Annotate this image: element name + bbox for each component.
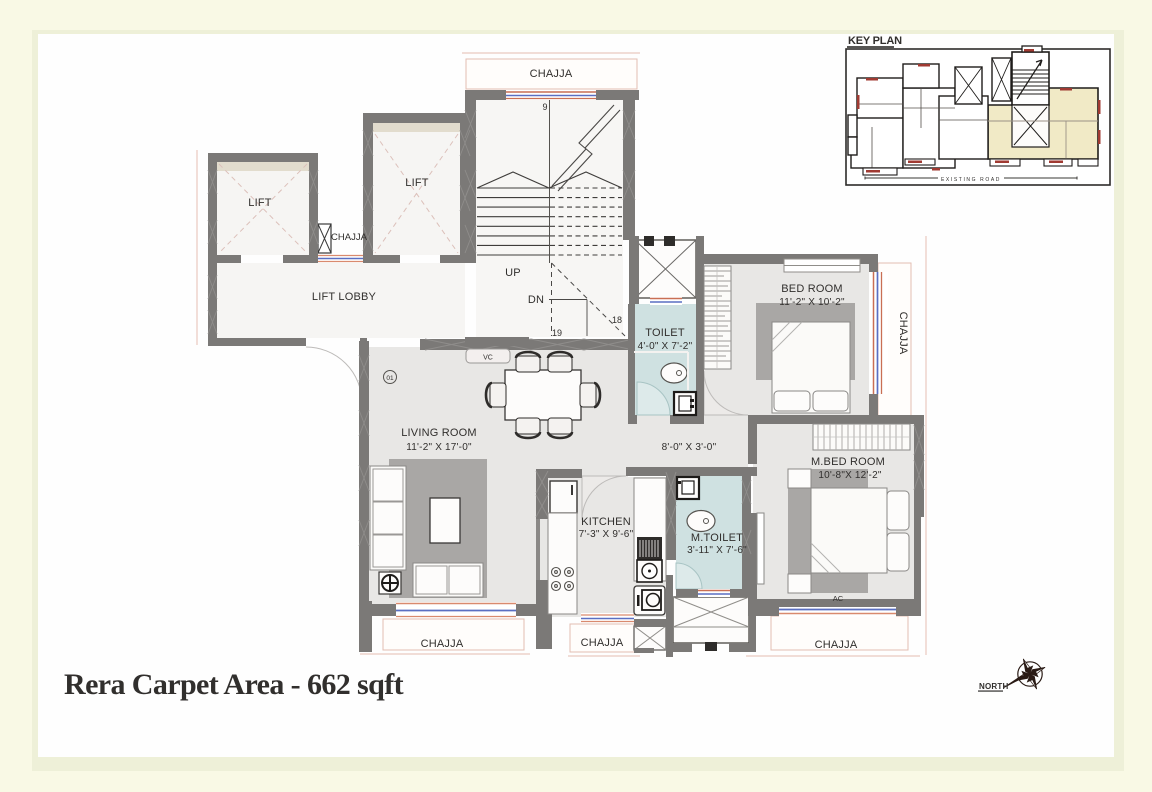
svg-text:19: 19: [552, 328, 562, 338]
svg-text:LIFT LOBBY: LIFT LOBBY: [312, 291, 377, 303]
svg-text:AC: AC: [833, 594, 844, 603]
svg-text:CHAJJA: CHAJJA: [897, 312, 909, 355]
svg-text:NORTH: NORTH: [979, 682, 1008, 691]
svg-text:KITCHEN: KITCHEN: [581, 516, 631, 528]
svg-text:3'-11" X 7'-6": 3'-11" X 7'-6": [687, 545, 747, 556]
svg-text:8'-0" X 3'-0": 8'-0" X 3'-0": [662, 442, 717, 453]
svg-text:UP: UP: [505, 267, 521, 279]
svg-text:Rera Carpet Area - 662 sqft: Rera Carpet Area - 662 sqft: [64, 668, 404, 701]
svg-text:CHAJJA: CHAJJA: [815, 639, 858, 651]
svg-text:CHAJJA: CHAJJA: [421, 638, 464, 650]
svg-text:BED ROOM: BED ROOM: [781, 283, 843, 295]
svg-text:DN: DN: [528, 294, 544, 306]
svg-text:CHAJJA: CHAJJA: [530, 68, 573, 80]
svg-text:M.BED ROOM: M.BED ROOM: [811, 456, 885, 468]
svg-text:9: 9: [542, 102, 547, 112]
svg-text:CHAJJA: CHAJJA: [331, 232, 368, 243]
svg-text:01: 01: [386, 375, 394, 382]
svg-text:KEY PLAN: KEY PLAN: [848, 35, 902, 47]
svg-text:CHAJJA: CHAJJA: [581, 637, 624, 649]
svg-text:M.TOILET: M.TOILET: [691, 532, 743, 544]
svg-text:11'-2" X 17'-0": 11'-2" X 17'-0": [406, 442, 472, 453]
svg-text:4'-0" X 7'-2": 4'-0" X 7'-2": [638, 341, 693, 352]
svg-text:VC: VC: [483, 355, 493, 362]
svg-text:LIFT: LIFT: [248, 197, 271, 209]
svg-text:18: 18: [612, 315, 622, 325]
svg-text:TOILET: TOILET: [645, 327, 685, 339]
svg-text:11'-2" X 10'-2": 11'-2" X 10'-2": [779, 297, 845, 308]
svg-text:10'-8"X 12'-2": 10'-8"X 12'-2": [818, 470, 881, 481]
svg-text:LIVING ROOM: LIVING ROOM: [401, 427, 477, 439]
svg-text:7'-3" X 9'-6": 7'-3" X 9'-6": [579, 529, 634, 540]
svg-text:EXISTING ROAD: EXISTING ROAD: [941, 177, 1001, 183]
svg-text:LIFT: LIFT: [405, 177, 428, 189]
